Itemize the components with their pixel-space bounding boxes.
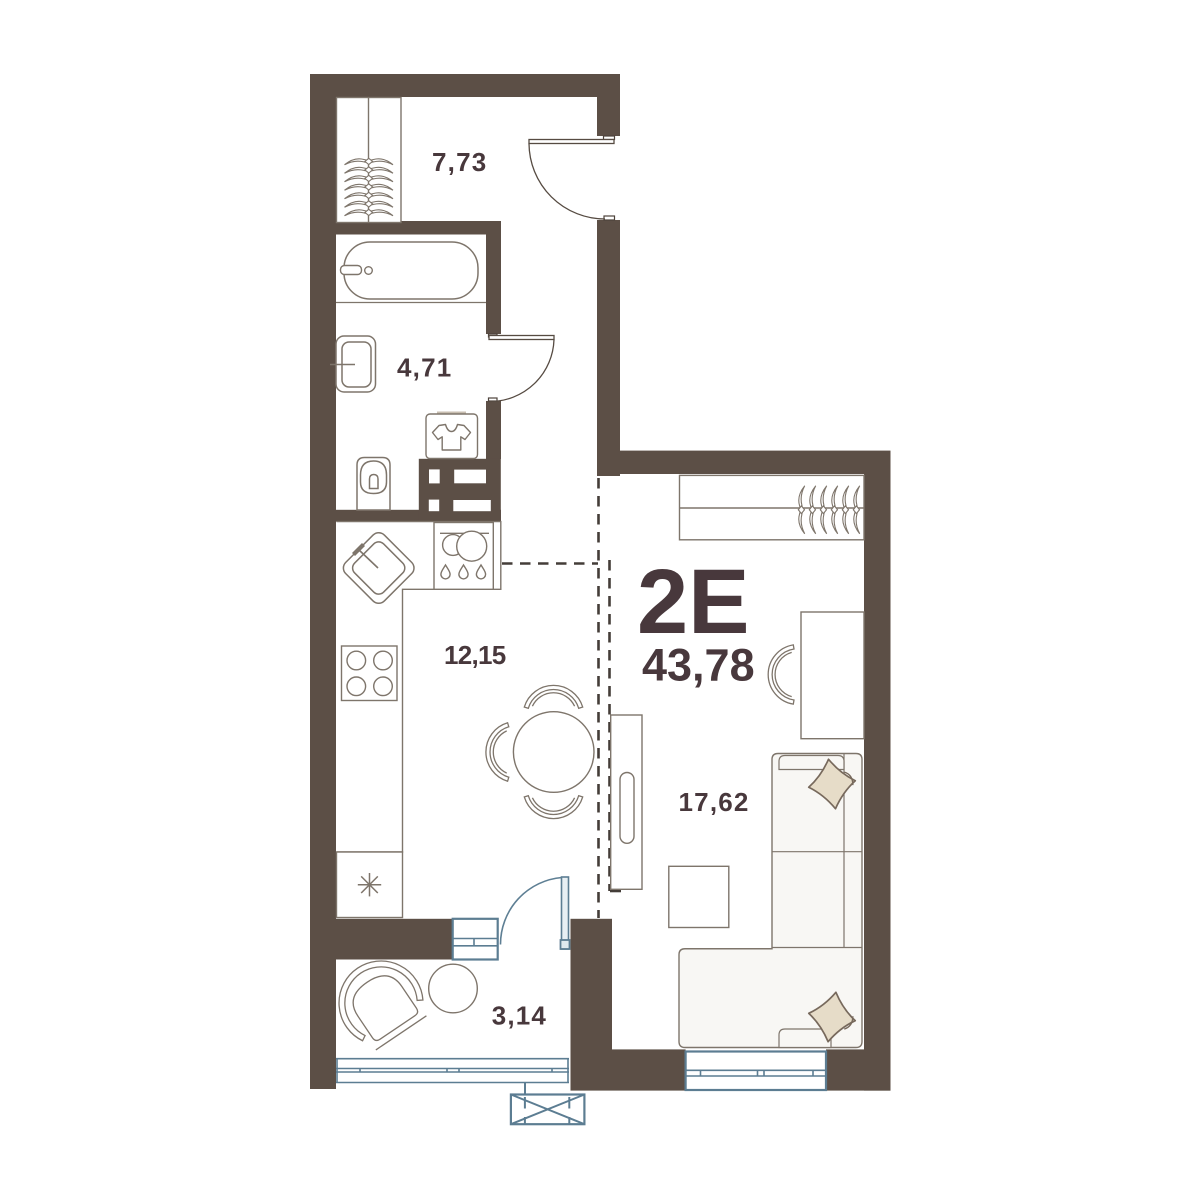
svg-text:12,15: 12,15	[444, 640, 506, 670]
svg-text:4,71: 4,71	[397, 353, 452, 383]
svg-text:43,78: 43,78	[642, 640, 755, 691]
svg-text:2E: 2E	[637, 551, 750, 653]
svg-text:7,73: 7,73	[432, 147, 487, 177]
svg-text:17,62: 17,62	[679, 787, 750, 817]
svg-text:3,14: 3,14	[492, 1000, 547, 1030]
